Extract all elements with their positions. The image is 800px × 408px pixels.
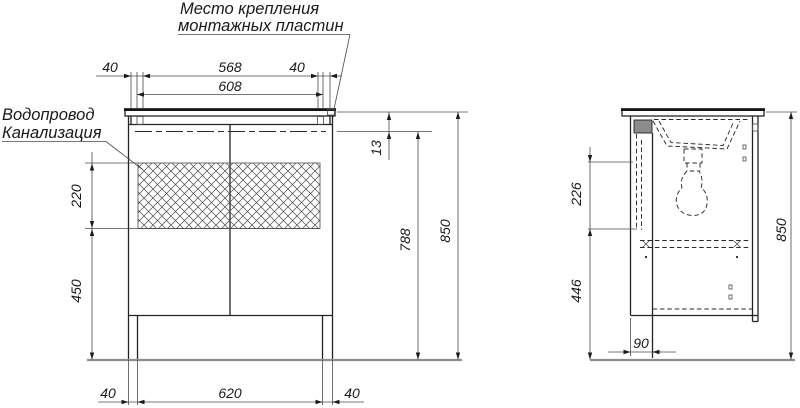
dim-label-bottom-right-40: 40 bbox=[344, 385, 360, 401]
side-mounting-plate-section bbox=[634, 120, 652, 133]
dim-label-220: 220 bbox=[68, 184, 84, 209]
callout-water-label: Водопровод bbox=[2, 106, 94, 124]
callout-mounting-line2: монтажных пластин bbox=[178, 17, 344, 35]
dim-label-788: 788 bbox=[397, 228, 413, 252]
dim-label-90: 90 bbox=[633, 335, 649, 351]
dim-label-450: 450 bbox=[68, 279, 84, 303]
vanity-dimension-drawing: 40 568 40 608 13 788 850 220 450 bbox=[0, 0, 800, 408]
dim-label-568: 568 bbox=[218, 59, 242, 75]
technical-drawing-sheet: 40 568 40 608 13 788 850 220 450 bbox=[0, 0, 800, 408]
side-rail-dot-right bbox=[736, 256, 738, 258]
dim-label-front-850: 850 bbox=[437, 219, 453, 243]
paper-background bbox=[0, 0, 800, 408]
dim-label-bottom-left-40: 40 bbox=[100, 385, 116, 401]
dim-label-top-left-40: 40 bbox=[102, 59, 118, 75]
side-rail-dot-left bbox=[645, 256, 647, 258]
dim-label-446: 446 bbox=[568, 279, 584, 303]
dim-label-side-850: 850 bbox=[773, 218, 789, 242]
dim-label-620: 620 bbox=[218, 385, 242, 401]
front-pipes-hatch-panel bbox=[138, 163, 320, 229]
dim-label-top-right-40: 40 bbox=[289, 59, 305, 75]
callout-mounting-line1: Место крепления bbox=[180, 0, 319, 18]
dim-label-13: 13 bbox=[368, 140, 384, 156]
callout-sewer-label: Канализация bbox=[2, 124, 102, 142]
dim-label-226: 226 bbox=[568, 182, 584, 207]
dim-label-608: 608 bbox=[218, 78, 242, 94]
